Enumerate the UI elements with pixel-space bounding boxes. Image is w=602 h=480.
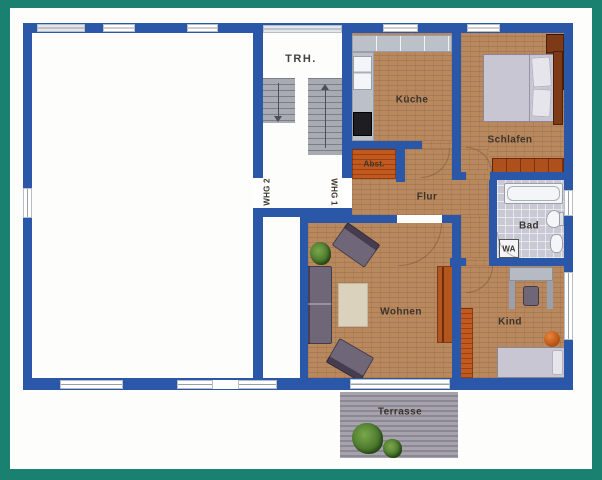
wall-schlafen-bottom: [490, 172, 564, 180]
rug: [338, 283, 368, 327]
room-label-bad: Bad: [519, 221, 539, 232]
wall-wohnen-left: [300, 215, 308, 390]
stove: [353, 112, 372, 136]
room-label-flur: Flur: [417, 192, 438, 203]
sofa: [305, 266, 332, 344]
wall-kind-top: [492, 258, 564, 266]
door-bigroom-bottom: [213, 380, 238, 389]
desk-chair: [523, 286, 539, 306]
ball: [544, 331, 560, 347]
room-label-trh: TRH.: [285, 53, 317, 65]
washbasin: [550, 234, 563, 253]
window-schlafen: [467, 24, 500, 32]
room-label-wohnen: Wohnen: [380, 307, 422, 318]
terrace-door: [350, 379, 450, 389]
window: [187, 24, 218, 32]
room-label-schlafen: Schlafen: [488, 135, 533, 146]
pillow: [531, 56, 552, 87]
door-whg1: [342, 178, 352, 208]
door-label-whg1: WHG 1: [330, 178, 339, 205]
window-kueche: [383, 24, 418, 32]
room-label-terrasse: Terrasse: [378, 407, 422, 418]
wall-bad-left: [489, 180, 497, 266]
kitchen-sink: [353, 56, 372, 90]
bathtub: [504, 183, 563, 204]
bush: [352, 423, 383, 454]
wall-kueche-schlafen: [452, 23, 461, 180]
stair-arrow-line: [325, 90, 326, 148]
bathtub-basin: [507, 186, 560, 201]
window-kind: [564, 272, 573, 340]
doorway-kueche-floor: [422, 141, 452, 149]
window: [37, 24, 85, 32]
door-whg2: [253, 178, 263, 208]
stair-arrow-head: [321, 84, 329, 90]
wall-wohnen-top: [300, 215, 397, 223]
stair-arrow-head: [274, 116, 282, 122]
wall-abst-stub: [396, 148, 405, 182]
window-stairwell: [263, 25, 342, 33]
door-label-whg2: WHG 2: [263, 178, 272, 205]
room-label-abst: Abst.: [364, 160, 385, 169]
window: [23, 188, 32, 218]
desk: [509, 267, 553, 281]
plant: [310, 242, 331, 265]
bed-headboard: [553, 51, 563, 125]
pillow: [552, 350, 563, 375]
wall-wohnen-kind: [452, 215, 461, 390]
window: [238, 380, 277, 389]
floor-plan-image: TRH. WHG 2 WHG 1 Küche Schlafen Abst. Fl…: [0, 0, 602, 480]
room-label-kueche: Küche: [396, 95, 429, 106]
fixture-label-wa: WA: [502, 245, 515, 254]
dresser: [492, 158, 564, 173]
wall-kueche-bottom: [342, 141, 422, 149]
doorway-schlafen-floor: [466, 172, 490, 180]
wall-schlafen-bottom: [452, 172, 466, 180]
kitchen-counter-top: [352, 35, 452, 52]
window: [177, 380, 213, 389]
door-wohnen: [397, 215, 442, 223]
room-label-kind: Kind: [498, 317, 522, 328]
room-flur-extension: [461, 215, 489, 258]
stair-arrow-line: [278, 83, 279, 117]
window: [60, 380, 123, 389]
bush: [383, 439, 402, 458]
pillow: [531, 89, 551, 118]
window-bad: [564, 190, 573, 216]
window: [103, 24, 135, 32]
